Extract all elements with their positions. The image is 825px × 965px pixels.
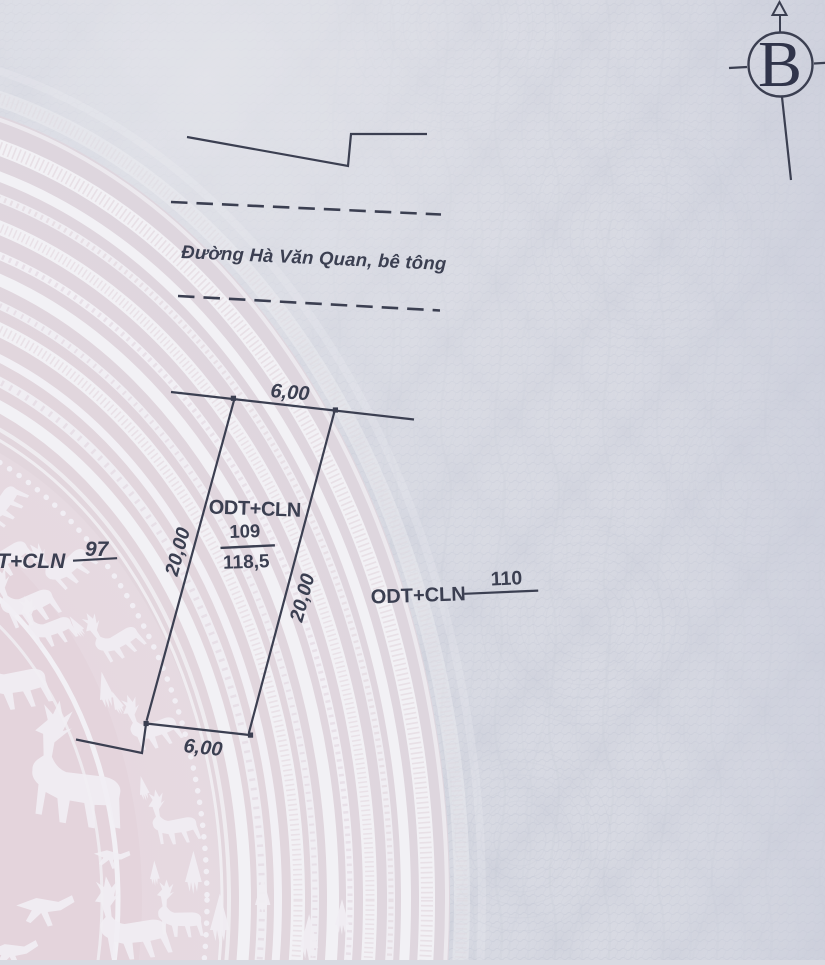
svg-text:T+CLN: T+CLN (0, 550, 66, 573)
svg-text:B: B (758, 28, 802, 101)
svg-text:97: 97 (85, 538, 110, 561)
svg-text:6,00: 6,00 (182, 735, 223, 761)
svg-text:109: 109 (229, 520, 261, 542)
svg-text:ODT+CLN: ODT+CLN (370, 583, 466, 608)
svg-text:118,5: 118,5 (223, 551, 271, 574)
svg-text:ODT+CLN: ODT+CLN (208, 497, 301, 522)
svg-text:110: 110 (490, 567, 523, 590)
svg-text:6,00: 6,00 (270, 380, 311, 405)
